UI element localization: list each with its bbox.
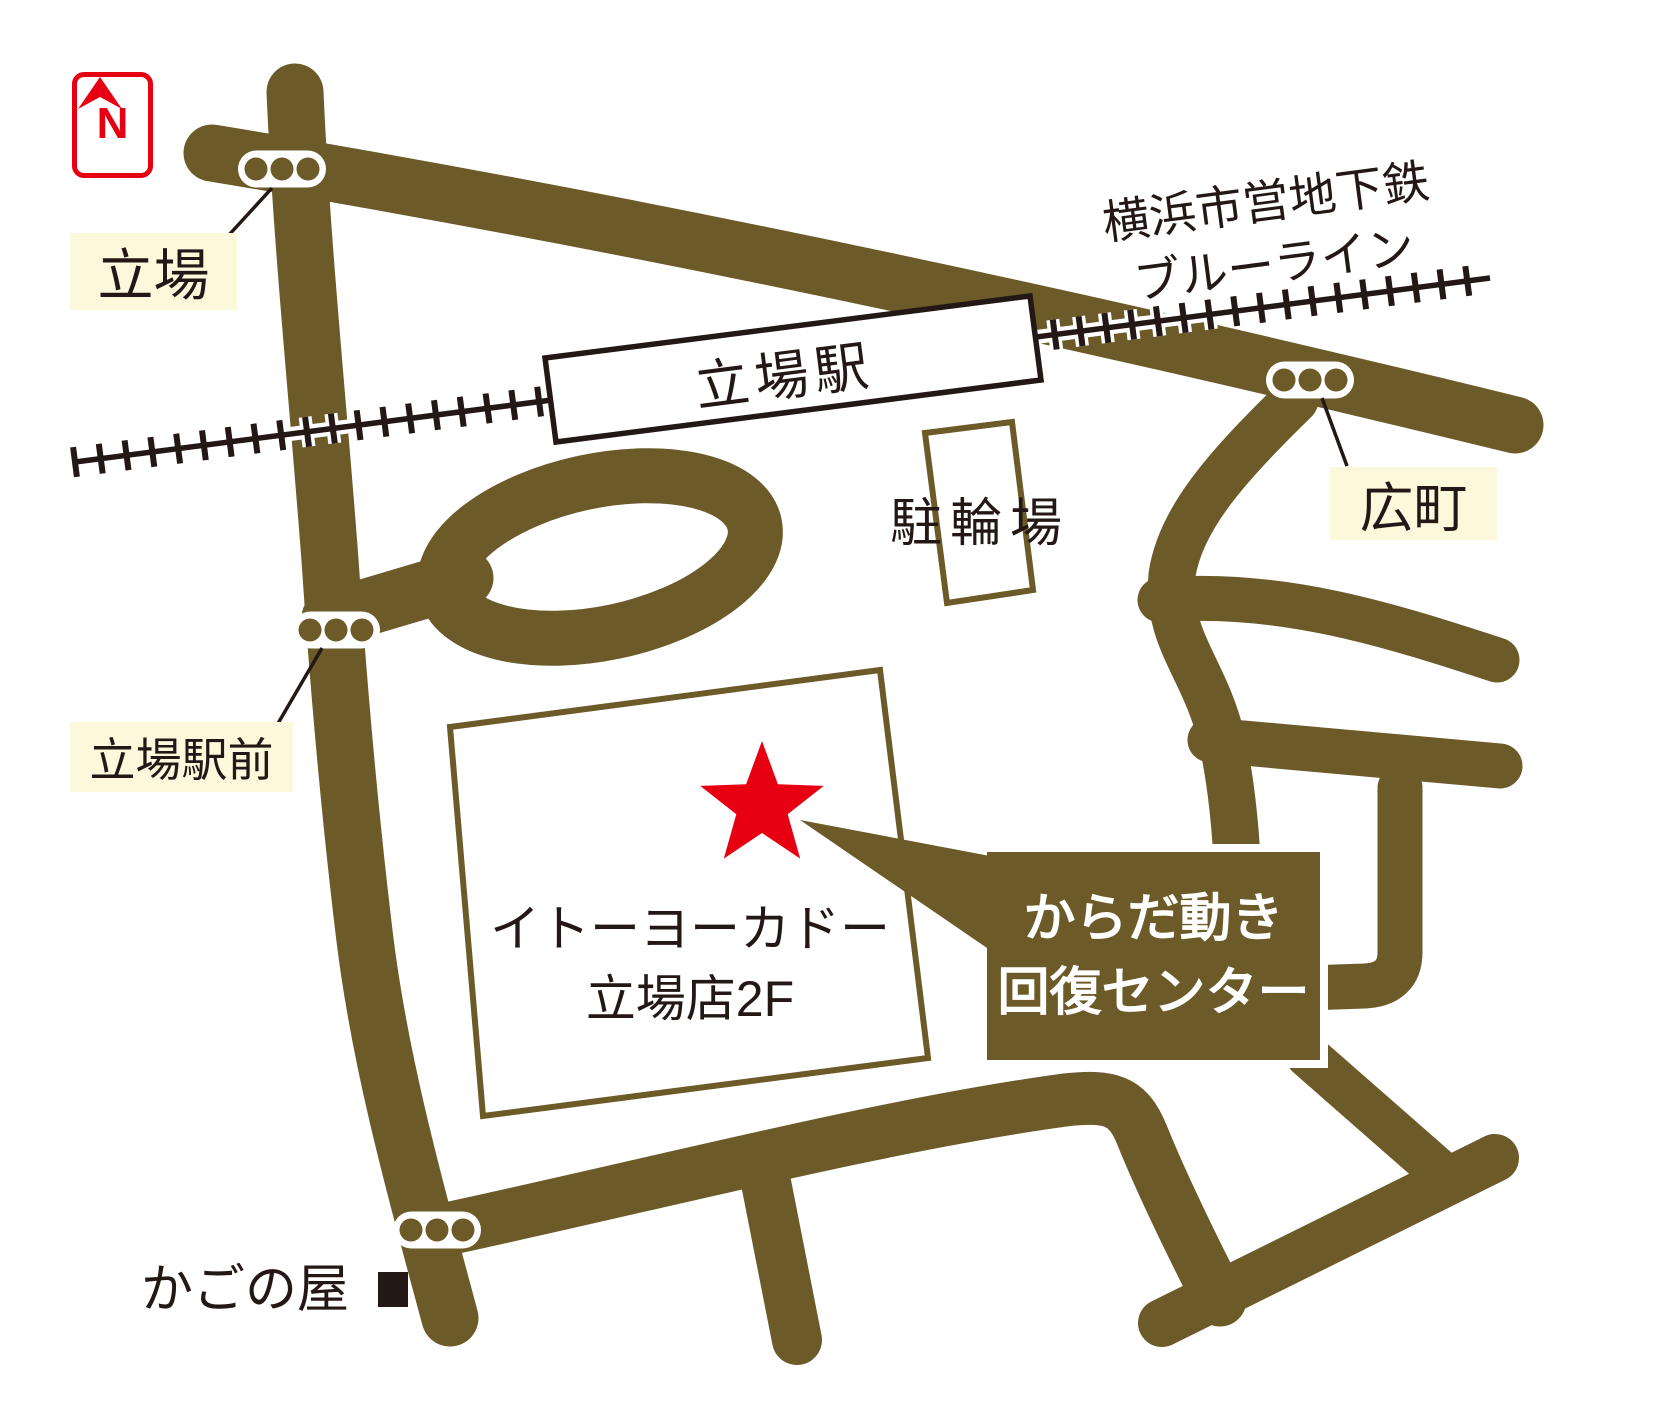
road-bottom <box>433 1098 1220 1300</box>
traffic-light-icon-hiromachi <box>1266 362 1354 399</box>
destination-label: からだ動き 回復センター <box>987 852 1320 1060</box>
road-east-branch-south <box>1210 740 1500 766</box>
building-label-1: イトーヨーカドー <box>440 894 940 964</box>
destination-label-1: からだ動き <box>1023 882 1283 956</box>
road-bottom-stub <box>762 1162 797 1340</box>
map-canvas: N 横浜市営地下鉄 ブルーライン 立場駅 立場 広町 立場駅前 駐輪場 イトーヨ… <box>0 0 1654 1417</box>
road-bottom-link <box>1308 1056 1438 1170</box>
landmark-label-kagonoya: かごの屋 <box>125 1253 365 1315</box>
north-arrow-icon <box>77 77 123 110</box>
traffic-light-icon-tateba <box>238 151 326 188</box>
traffic-light-icon-tateba-ekimae <box>292 612 380 649</box>
building-label: イトーヨーカドー 立場店2F <box>440 894 940 1034</box>
intersection-label-tateba: 立場 <box>70 233 237 310</box>
building-outline <box>450 670 928 1116</box>
intersection-label-hiromachi: 広町 <box>1330 467 1497 540</box>
traffic-light-icon-south <box>393 1212 481 1249</box>
north-compass: N <box>72 72 153 178</box>
road-west-vertical <box>295 92 450 1318</box>
building-label-2: 立場店2F <box>440 964 940 1034</box>
landmark-square-icon <box>378 1272 408 1307</box>
destination-label-2: 回復センター <box>997 956 1309 1030</box>
intersection-label-tateba-ekimae: 立場駅前 <box>70 722 293 792</box>
bicycle-parking-label: 駐輪場 <box>855 487 1105 549</box>
callout-line-tateba <box>228 188 272 236</box>
